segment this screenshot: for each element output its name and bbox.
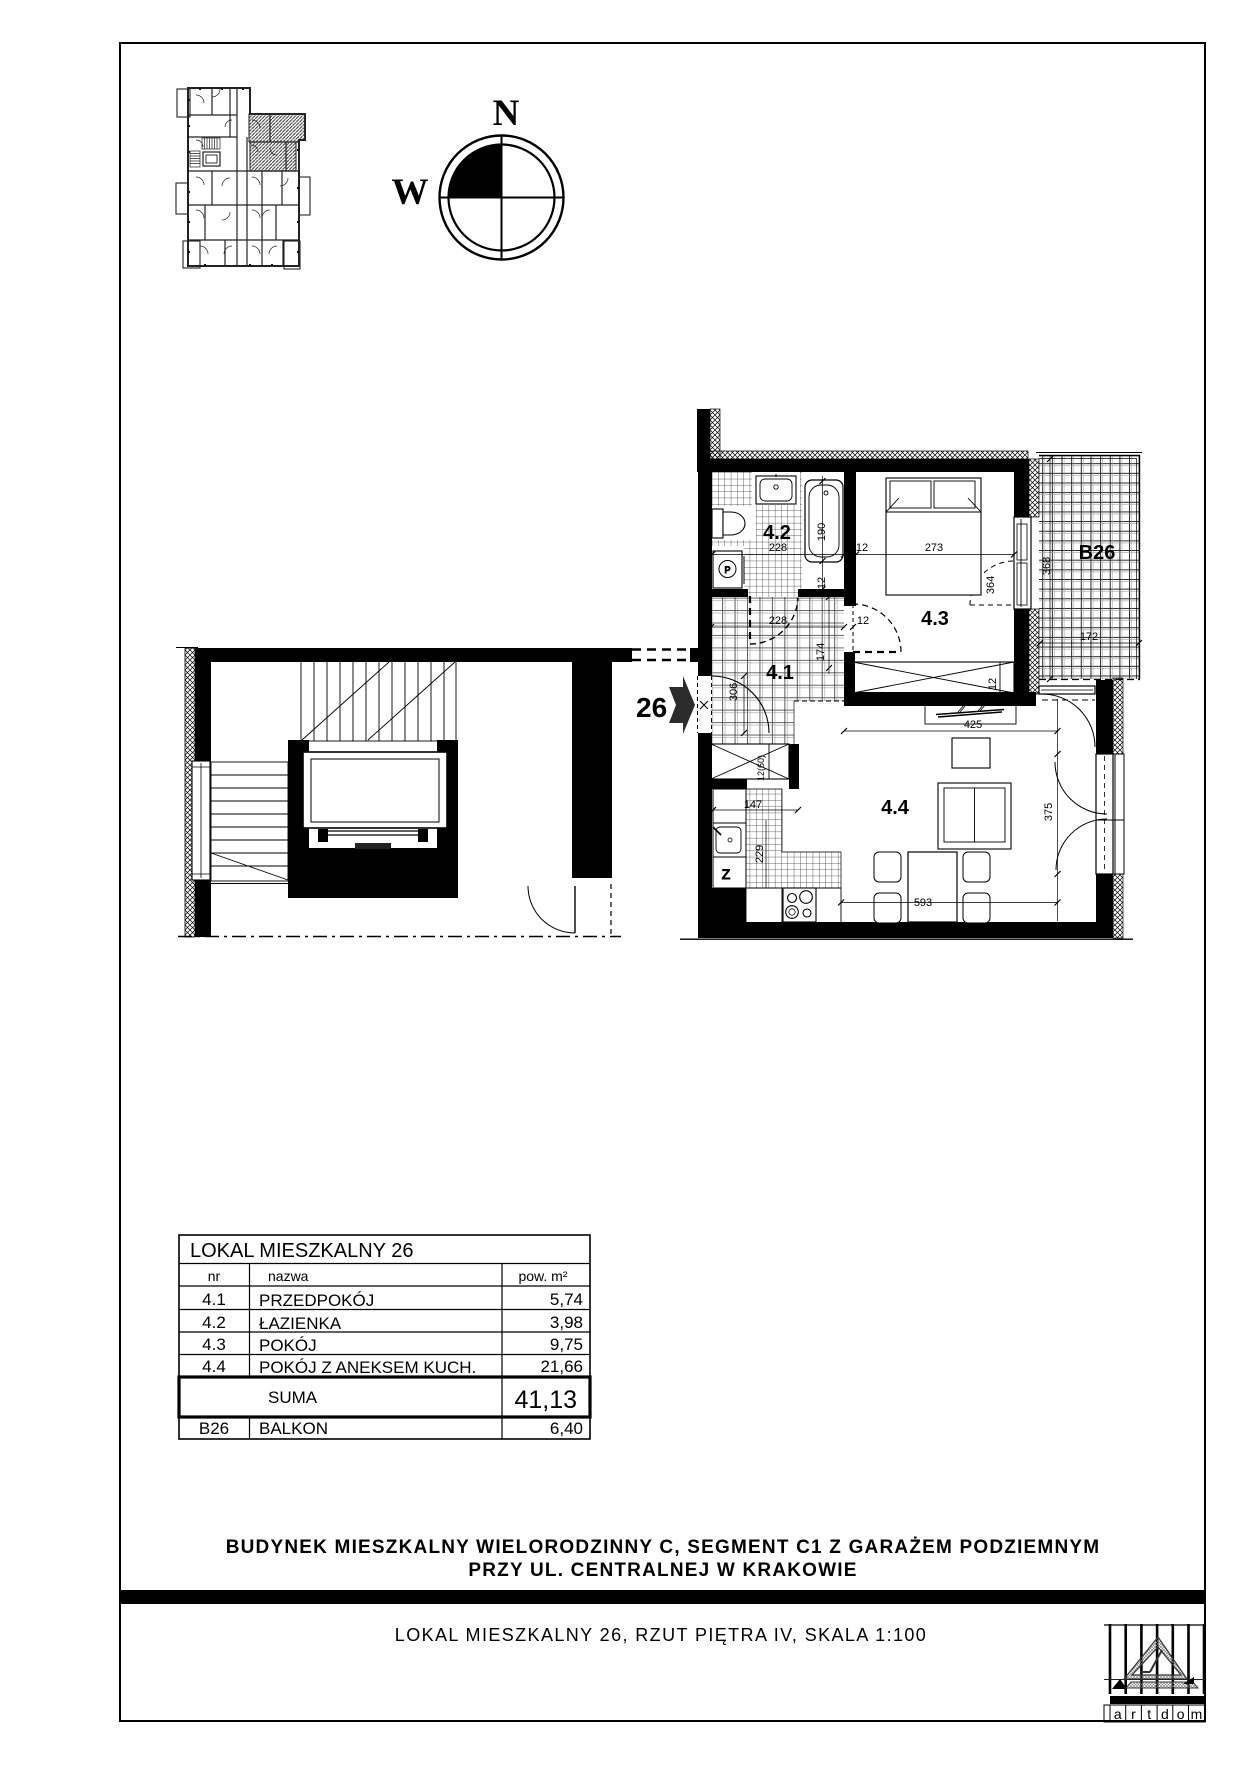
svg-text:3,98: 3,98	[550, 1313, 583, 1332]
svg-text:4.4: 4.4	[881, 797, 910, 819]
svg-text:BUDYNEK MIESZKALNY WIELORODZIN: BUDYNEK MIESZKALNY WIELORODZINNY C, SEGM…	[226, 1537, 1101, 1558]
svg-text:PRZY UL. CENTRALNEJ W KRAKOWIE: PRZY UL. CENTRALNEJ W KRAKOWIE	[468, 1560, 857, 1581]
svg-text:nr: nr	[208, 1268, 221, 1284]
svg-text:12: 12	[816, 577, 828, 589]
svg-text:N: N	[493, 93, 520, 134]
svg-text:593: 593	[914, 897, 932, 909]
svg-text:147: 147	[744, 799, 762, 811]
svg-text:228: 228	[769, 542, 787, 554]
svg-text:26: 26	[636, 692, 667, 723]
svg-text:POKÓJ Z ANEKSEM KUCH.: POKÓJ Z ANEKSEM KUCH.	[259, 1358, 476, 1377]
svg-text:PRZEDPOKÓJ: PRZEDPOKÓJ	[259, 1291, 374, 1310]
svg-text:4.1: 4.1	[202, 1290, 226, 1309]
svg-text:o: o	[1177, 1706, 1185, 1722]
svg-text:m: m	[1191, 1706, 1203, 1722]
svg-text:4.3: 4.3	[202, 1335, 226, 1354]
svg-text:306: 306	[728, 683, 740, 701]
svg-text:12(60): 12(60)	[756, 755, 766, 781]
svg-text:4.2: 4.2	[202, 1313, 226, 1332]
svg-text:41,13: 41,13	[514, 1386, 577, 1414]
svg-text:425: 425	[964, 719, 982, 731]
svg-text:d: d	[1161, 1706, 1169, 1722]
svg-text:POKÓJ: POKÓJ	[259, 1336, 317, 1355]
svg-text:12: 12	[987, 678, 999, 690]
svg-text:12: 12	[857, 615, 869, 627]
svg-text:375: 375	[1043, 803, 1055, 821]
svg-text:nazwa: nazwa	[268, 1268, 309, 1284]
svg-text:BALKON: BALKON	[259, 1419, 328, 1438]
svg-text:4.2: 4.2	[763, 522, 791, 544]
svg-text:190: 190	[816, 523, 828, 541]
svg-text:pow. m²: pow. m²	[518, 1268, 567, 1284]
svg-text:4.1: 4.1	[766, 662, 794, 684]
svg-text:Z: Z	[722, 866, 731, 882]
svg-text:LOKAL MIESZKALNY 26, RZUT PIĘT: LOKAL MIESZKALNY 26, RZUT PIĘTRA IV, SKA…	[395, 1625, 927, 1645]
svg-text:273: 273	[925, 542, 943, 554]
svg-text:228: 228	[769, 615, 787, 627]
svg-text:ŁAZIENKA: ŁAZIENKA	[259, 1314, 342, 1333]
svg-text:9,75: 9,75	[550, 1335, 583, 1354]
svg-text:368: 368	[1041, 557, 1053, 575]
svg-text:SUMA: SUMA	[268, 1388, 318, 1407]
svg-text:364: 364	[985, 576, 997, 594]
svg-text:4.3: 4.3	[921, 608, 949, 630]
svg-text:174: 174	[815, 643, 827, 661]
svg-text:5,74: 5,74	[550, 1290, 583, 1309]
svg-text:172: 172	[1080, 631, 1098, 643]
svg-text:r: r	[1131, 1706, 1136, 1722]
svg-text:t: t	[1147, 1706, 1151, 1722]
svg-text:a: a	[1114, 1706, 1122, 1722]
svg-text:W: W	[392, 172, 429, 213]
svg-text:229: 229	[754, 845, 766, 863]
svg-text:LOKAL MIESZKALNY 26: LOKAL MIESZKALNY 26	[190, 1240, 413, 1262]
svg-text:P: P	[724, 565, 730, 575]
svg-text:4.4: 4.4	[202, 1357, 226, 1376]
svg-text:21,66: 21,66	[540, 1357, 583, 1376]
svg-text:12: 12	[856, 542, 868, 554]
svg-text:B26: B26	[1079, 542, 1116, 564]
svg-text:B26: B26	[199, 1419, 229, 1438]
svg-text:6,40: 6,40	[550, 1419, 583, 1438]
